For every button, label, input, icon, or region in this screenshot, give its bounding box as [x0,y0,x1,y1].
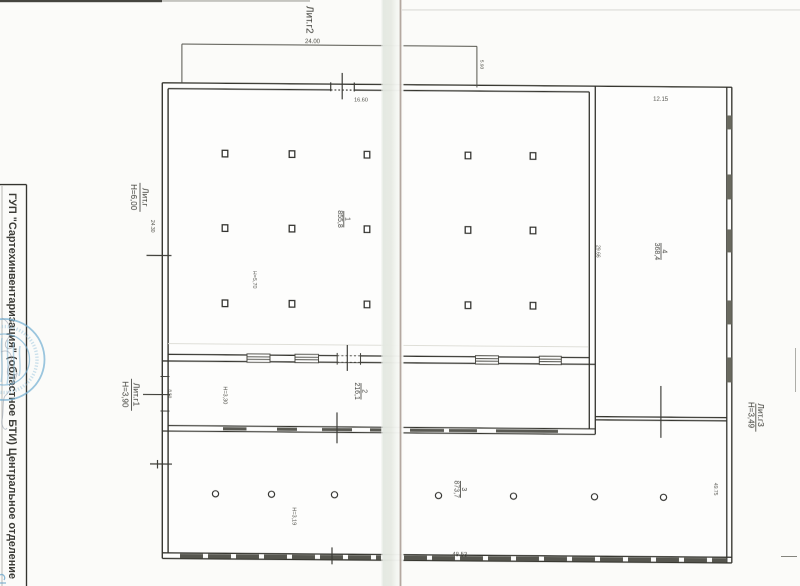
svg-text:Лит.г: Лит.г [141,188,151,207]
svg-text:368,4: 368,4 [653,243,660,261]
svg-text:216,1: 216,1 [353,382,360,400]
svg-text:29.66: 29.66 [595,245,601,258]
svg-text:Н=3,90: Н=3,90 [121,381,130,408]
svg-text:Лит.г1: Лит.г1 [132,383,142,407]
svg-text:873,7: 873,7 [453,480,460,498]
svg-text:3: 3 [460,487,467,491]
svg-text:24.00: 24.00 [305,39,321,45]
svg-text:855,8: 855,8 [336,210,343,228]
svg-text:16.60: 16.60 [354,98,368,104]
svg-text:12.15: 12.15 [653,97,669,103]
svg-text:4: 4 [661,249,668,253]
svg-text:49.75: 49.75 [712,483,718,496]
svg-text:Н=3,49: Н=3,49 [747,402,756,429]
svg-text:Н=3,30: Н=3,30 [222,386,228,404]
svg-text:Лит.г3: Лит.г3 [756,403,766,427]
svg-text:8.50: 8.50 [168,389,173,398]
svg-text:24.30: 24.30 [149,220,155,233]
svg-text:48.53: 48.53 [452,552,468,558]
svg-text:Лит.г2: Лит.г2 [304,6,315,34]
svg-text:1: 1 [343,217,350,221]
svg-text:2: 2 [361,389,368,393]
svg-text:Н=6,00: Н=6,00 [129,184,138,211]
svg-text:Н=5,70: Н=5,70 [251,271,257,289]
svg-text:Н=3,19: Н=3,19 [291,507,297,525]
svg-text:5.93: 5.93 [479,60,485,70]
